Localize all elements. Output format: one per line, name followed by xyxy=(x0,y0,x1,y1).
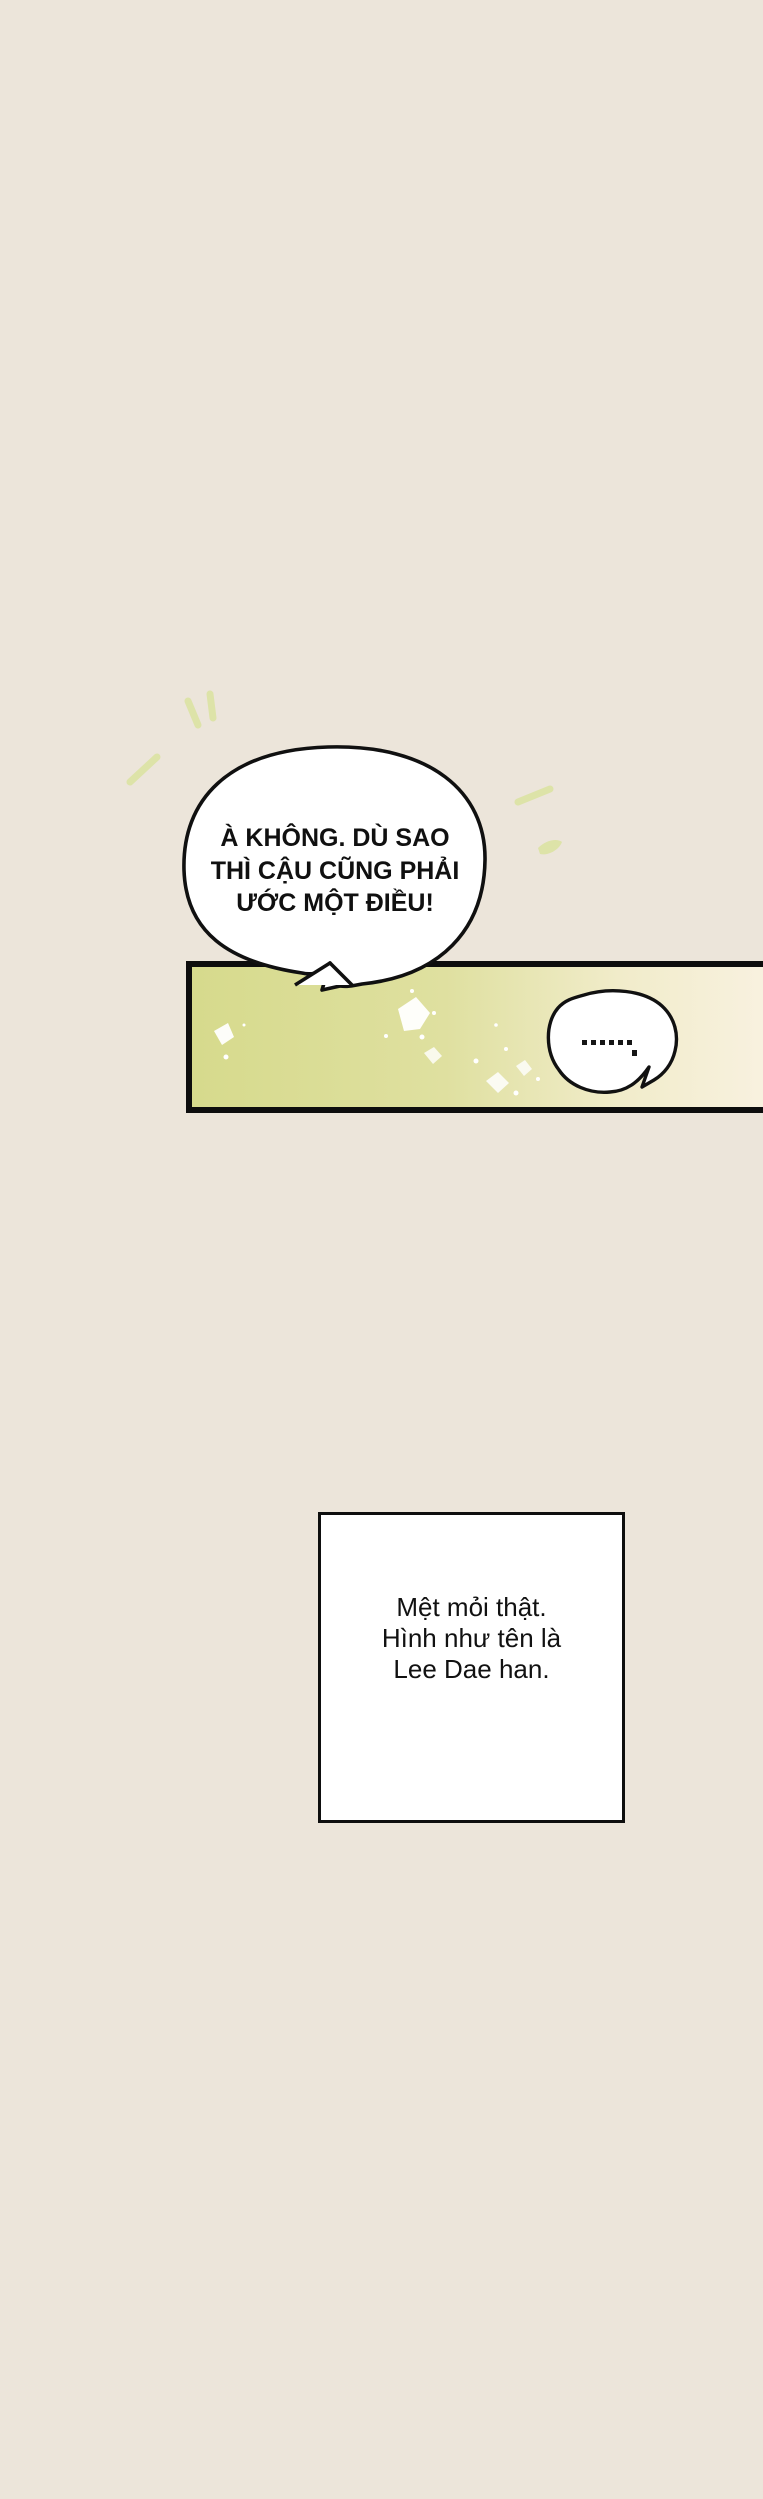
svg-text:À KHÔNG. DÙ SAO: À KHÔNG. DÙ SAO xyxy=(220,822,449,852)
svg-text:ƯỚC MỘT ĐIỀU!: ƯỚC MỘT ĐIỀU! xyxy=(236,887,434,917)
svg-text:THÌ CẬU CŨNG PHẢI: THÌ CẬU CŨNG PHẢI xyxy=(211,855,460,885)
